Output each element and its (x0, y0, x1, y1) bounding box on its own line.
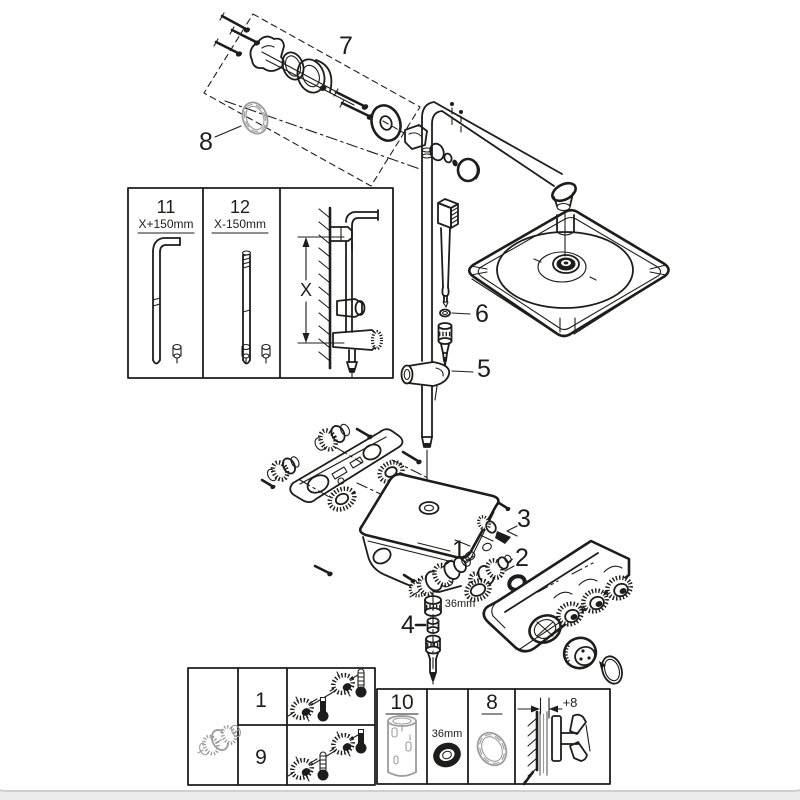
callout-6: 6 (475, 300, 489, 328)
callout-4: 4 (401, 611, 415, 639)
wall-dim-x: X (300, 280, 312, 300)
cap-wrench-size: 36mm (445, 598, 476, 610)
table-row-9-id: 9 (255, 746, 267, 769)
callout-8: 8 (199, 128, 213, 156)
pipe-12-dim: X-150mm (214, 217, 266, 231)
pipe-12-label: 12 (230, 197, 250, 217)
offset-dim-label: +8 (563, 695, 578, 710)
callout-1: 1 (452, 536, 466, 564)
callout-5: 5 (477, 355, 491, 383)
callout-7: 7 (339, 32, 353, 60)
diagram-page: 7 8 11 X+150mm 12 X-150mm (0, 0, 800, 800)
callout-2: 2 (515, 544, 529, 572)
extension-id: 10 (390, 691, 413, 714)
pipe-11-label: 11 (157, 197, 176, 217)
head-center-cap (553, 255, 579, 273)
callout-3: 3 (517, 505, 531, 533)
table-row-1-id: 1 (255, 689, 267, 712)
exploded-parts-diagram: 7 8 11 X+150mm 12 X-150mm (0, 0, 800, 800)
wrench-size-label: 36mm (432, 728, 463, 740)
ring-8-id: 8 (486, 691, 498, 714)
pipe-11-dim: X+150mm (138, 217, 193, 231)
